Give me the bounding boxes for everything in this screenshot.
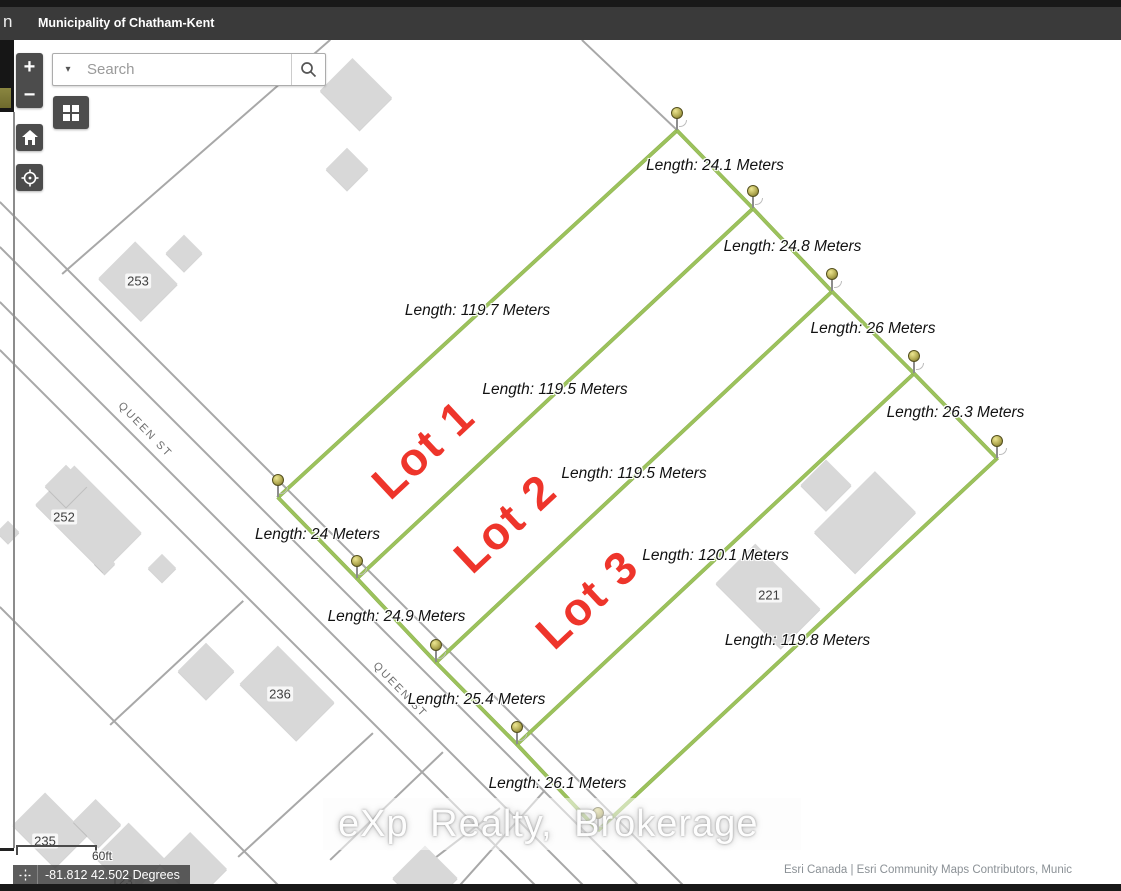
lot-label: Lot 3 [525,538,650,659]
header-cutoff-text: n [3,12,12,32]
pin-curl-icon [916,363,924,370]
magnifier-icon [300,61,317,78]
measurement-length-label: Length: 24.8 Meters [724,238,862,256]
pin-curl-icon [280,487,288,494]
building-footprint [13,793,88,868]
measurement-length-label: Length: 119.7 Meters [405,302,550,320]
pin-curl-icon [438,652,446,659]
zoom-in-button[interactable]: + [16,53,43,80]
pin-head-icon [430,639,442,651]
building-footprint [320,58,392,130]
chevron-down-icon: ▾ [65,64,70,75]
pin-head-icon [908,350,920,362]
pin-head-icon [671,107,683,119]
measurement-length-label: Length: 24.9 Meters [328,608,466,626]
measurement-length-label: Length: 25.4 Meters [408,691,546,709]
measurement-length-label: Length: 24.1 Meters [646,157,784,175]
home-button[interactable] [16,124,43,151]
measurement-length-label: Length: 119.5 Meters [561,465,706,483]
coordinate-readout: -81.812 42.502 Degrees [45,868,180,882]
pin-curl-icon [679,120,687,127]
pin-curl-icon [999,448,1007,455]
page-title: Municipality of Chatham-Kent [38,16,214,30]
zoom-out-button[interactable]: − [16,81,43,108]
home-icon [22,130,38,145]
measurement-length-label: Length: 119.8 Meters [725,632,870,650]
search-widget: ▾ [52,53,326,86]
locate-icon [21,169,39,187]
basemap-gallery-button[interactable] [53,96,89,129]
pin-curl-icon [755,198,763,205]
map-attribution: Esri Canada | Esri Community Maps Contri… [780,862,1076,878]
measurement-length-label: Length: 26 Meters [811,320,936,338]
measurement-length-label: Length: 24 Meters [255,526,380,544]
browser-top-strip [0,0,1121,7]
pin-head-icon [747,185,759,197]
plus-icon: + [24,57,36,77]
basemap-grid-icon [63,105,79,121]
coordinate-widget[interactable]: -81.812 42.502 Degrees [13,865,190,885]
browser-bottom-strip [0,884,1121,891]
pin-curl-icon [359,568,367,575]
left-panel-edge [13,112,15,848]
crosshair-icon [13,865,38,885]
minus-icon: − [24,85,36,105]
pin-head-icon [511,721,523,733]
pin-curl-icon [519,734,527,741]
pin-head-icon [351,555,363,567]
building-footprint [326,148,368,190]
search-input[interactable] [83,54,291,85]
watermark-text: eXp Realty, Brokerage [338,803,759,846]
map-canvas[interactable]: QUEEN STQUEEN ST253252236221235123Length… [0,0,1121,891]
building-footprint [0,521,19,544]
house-number-label: 221 [756,588,782,603]
house-number-label: 252 [51,510,77,525]
locate-button[interactable] [16,164,43,191]
parcel-line [0,246,645,891]
parcel-line [581,39,677,130]
left-panel-thumbnail [0,88,11,108]
pin-head-icon [826,268,838,280]
building-footprint [166,235,203,272]
measurement-length-label: Length: 26.3 Meters [887,404,1025,422]
house-number-label: 253 [125,274,151,289]
measurement-length-label: Length: 120.1 Meters [642,547,789,565]
measurement-length-label: Length: 119.5 Meters [482,381,627,399]
left-panel-edge-foot [0,848,14,851]
measurement-length-label: Length: 26.1 Meters [489,775,627,793]
search-submit-button[interactable] [291,54,325,85]
zoom-control: + − [16,53,43,108]
search-source-dropdown[interactable]: ▾ [53,54,83,85]
street-label: QUEEN ST [116,400,175,460]
building-footprint [148,554,176,582]
app-header: n Municipality of Chatham-Kent [0,7,1121,40]
pin-head-icon [991,435,1003,447]
house-number-label: 236 [267,687,293,702]
app-window: QUEEN STQUEEN ST253252236221235123Length… [0,0,1121,891]
pin-head-icon [272,474,284,486]
pin-curl-icon [834,281,842,288]
scale-bar [16,845,97,855]
scale-bar-label: 60ft [92,849,112,863]
lot-label: Lot 1 [361,388,486,509]
